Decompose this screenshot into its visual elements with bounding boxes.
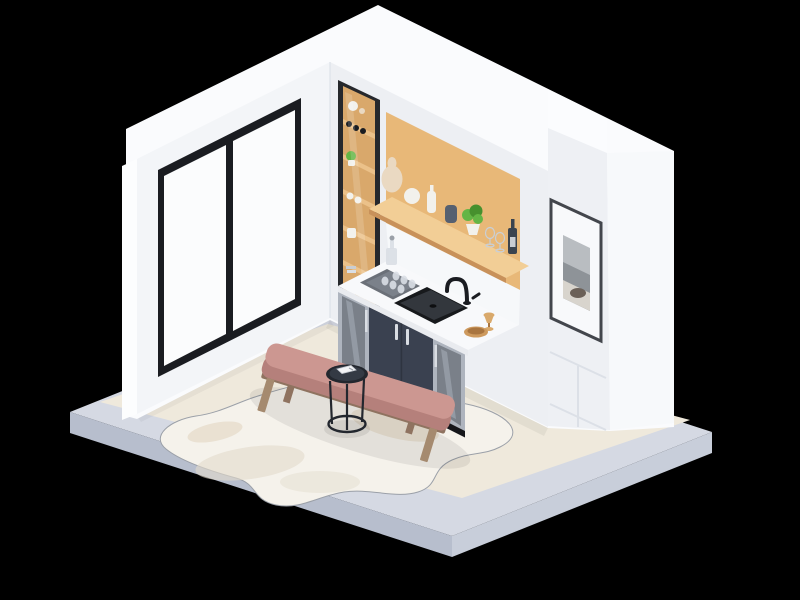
stacked-item bbox=[346, 266, 356, 269]
column-side-face bbox=[607, 151, 674, 430]
door-glass-pane-right bbox=[233, 110, 295, 331]
side-table bbox=[324, 365, 370, 439]
glass bbox=[382, 277, 389, 286]
wine-bottle bbox=[360, 128, 366, 134]
fridge-handle bbox=[365, 310, 368, 332]
pitcher bbox=[347, 228, 356, 238]
glass bbox=[398, 285, 405, 294]
glass bbox=[409, 280, 416, 289]
framed-photo bbox=[551, 200, 601, 341]
decanter-stopper bbox=[390, 236, 395, 241]
decanter bbox=[386, 248, 397, 265]
fridge-handle bbox=[435, 345, 438, 367]
cabinet-handle bbox=[406, 329, 409, 345]
vase bbox=[359, 108, 365, 114]
wood-bowl-inner bbox=[468, 328, 485, 335]
wine-bottle-label bbox=[510, 237, 516, 247]
left-wall-end-strip bbox=[122, 159, 137, 420]
wine-bottle-neck bbox=[511, 219, 515, 229]
sphere-vase bbox=[404, 188, 420, 204]
glass bbox=[401, 276, 408, 285]
cup bbox=[347, 193, 354, 200]
cabinet-handle bbox=[395, 324, 398, 340]
door-mullion bbox=[226, 141, 233, 334]
gourd-vase bbox=[382, 166, 403, 193]
dark-vase bbox=[445, 205, 457, 223]
glass bbox=[390, 281, 397, 290]
render-canvas bbox=[0, 0, 800, 600]
plant-leaves bbox=[473, 214, 483, 224]
photo-rock bbox=[570, 288, 586, 298]
isometric-room-illustration bbox=[0, 0, 800, 600]
sink-drain bbox=[430, 304, 437, 308]
glass bbox=[393, 272, 400, 281]
decanter-neck bbox=[390, 240, 394, 249]
rug-patch bbox=[280, 471, 360, 493]
stacked-item bbox=[347, 270, 356, 273]
bottle-vase bbox=[427, 191, 436, 213]
door-glass-pane-left bbox=[164, 145, 226, 366]
